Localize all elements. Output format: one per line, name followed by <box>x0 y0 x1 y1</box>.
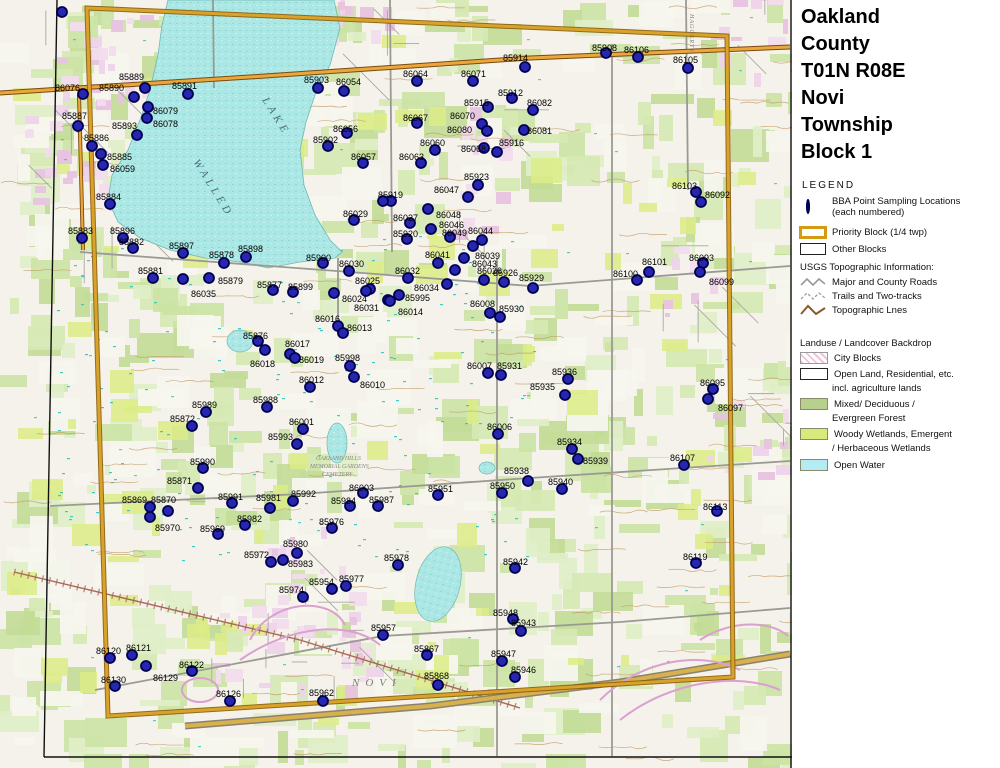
bba-point-label: 85978 <box>384 553 409 563</box>
bba-point-label: 85869 <box>122 495 147 505</box>
bba-point-dot <box>520 62 530 72</box>
bba-point-label: 85942 <box>503 557 528 567</box>
water-swatch <box>800 459 828 471</box>
bba-point-label: 85989 <box>192 400 217 410</box>
bba-point-label: 86041 <box>425 250 450 260</box>
page: WALLEDLAKENOVIHAGGERTYOAKLAND HILLSMEMOR… <box>0 0 1000 768</box>
bba-point-dot <box>141 661 151 671</box>
bba-point-label: 86048 <box>436 210 461 220</box>
topo-line-icon <box>800 304 826 316</box>
bba-point-label: 86103 <box>672 181 697 191</box>
bba-point-label: 85946 <box>511 665 536 675</box>
bba-point-dot <box>442 279 452 289</box>
bba-point-dot <box>129 92 139 102</box>
map-text: CEMETERY <box>322 472 353 478</box>
bba-point-dot <box>204 273 214 283</box>
bba-point-label: 86044 <box>468 226 493 236</box>
bba-point-label: 86100 <box>613 269 638 279</box>
bba-point-dot <box>644 267 654 277</box>
bba-point-label: 86054 <box>336 77 361 87</box>
bba-point-dot <box>339 86 349 96</box>
map-canvas: WALLEDLAKENOVIHAGGERTYOAKLAND HILLSMEMOR… <box>0 0 792 768</box>
title-line: County <box>792 31 1000 58</box>
legend-label-cont: Evergreen Forest <box>800 413 905 424</box>
bba-point-label: 85940 <box>548 477 573 487</box>
bba-point-label: 86081 <box>527 126 552 136</box>
bba-point-label: 86025 <box>355 276 380 286</box>
bba-point-label: 85898 <box>238 244 263 254</box>
bba-point-label: 85948 <box>493 608 518 618</box>
sampling-dot-icon <box>806 199 810 214</box>
bba-point-label: 85914 <box>503 53 528 63</box>
bba-point-dot <box>132 130 142 140</box>
legend-label: BBA Point Sampling Locations(each number… <box>832 196 960 218</box>
bba-point-label: 86030 <box>339 259 364 269</box>
sidebar: Oakland County T01N R08E Novi Township B… <box>792 0 1000 768</box>
bba-point-label: 86107 <box>670 453 695 463</box>
bba-point-label: 85882 <box>119 237 144 247</box>
bba-point-label: 85984 <box>331 496 356 506</box>
legend-item-roads: Major and County Roads <box>800 276 937 288</box>
bba-point-label: 86120 <box>96 646 121 656</box>
bba-point-dot <box>260 345 270 355</box>
title-line: Township <box>792 112 1000 139</box>
bba-point-label: 85935 <box>530 382 555 392</box>
title-line: Oakland <box>792 4 1000 31</box>
bba-point-label: 86093 <box>689 253 714 263</box>
legend-label: City Blocks <box>834 353 881 364</box>
bba-point-label: 86029 <box>343 209 368 219</box>
bba-point-label: 85991 <box>218 492 243 502</box>
bba-point-label: 86095 <box>700 378 725 388</box>
bba-point-label: 86027 <box>393 213 418 223</box>
bba-point-dot <box>463 192 473 202</box>
bba-point-label: 85896 <box>110 226 135 236</box>
bba-point-label: 85923 <box>464 172 489 182</box>
bba-point-label: 85930 <box>499 304 524 314</box>
bba-point-dot <box>485 308 495 318</box>
bba-point-label: 85990 <box>190 457 215 467</box>
title-line: Novi <box>792 85 1000 112</box>
legend-item-water: Open Water <box>800 459 885 471</box>
legend-label: Priority Block (1/4 twp) <box>832 227 927 238</box>
legend-item-trails: Trails and Two-tracks <box>800 290 922 302</box>
legend-item-open: Open Land, Residential, etc. <box>800 368 954 380</box>
legend-label: Major and County Roads <box>832 277 937 288</box>
map-text: OAKLAND HILLS <box>316 456 361 462</box>
bba-point-label: 85976 <box>319 517 344 527</box>
bba-point-label: 85900 <box>306 253 331 263</box>
bba-point-label: 86047 <box>434 185 459 195</box>
bba-point-label: 85893 <box>112 121 137 131</box>
legend-label: Other Blocks <box>832 244 886 255</box>
bba-point-label: 85891 <box>172 81 197 91</box>
bba-point-label: 85983 <box>288 559 313 569</box>
bba-point-label: 85934 <box>557 437 582 447</box>
bba-point-label: 86034 <box>414 283 439 293</box>
bba-point-label: 86018 <box>250 359 275 369</box>
map-title: Oakland County T01N R08E Novi Township B… <box>792 0 1000 166</box>
bba-point-label: 86014 <box>398 307 423 317</box>
bba-point-dot <box>178 274 188 284</box>
bba-point-dot <box>163 506 173 516</box>
legend-label: Topographic Lnes <box>832 305 907 316</box>
bba-point-label: 85919 <box>378 190 403 200</box>
bba-point-dot <box>265 503 275 513</box>
bba-point-dot <box>560 390 570 400</box>
bba-point-dot <box>140 83 150 93</box>
legend-label-cont: incl. agriculture lands <box>800 383 921 394</box>
bba-point-label: 85883 <box>68 226 93 236</box>
bba-point-label: 85902 <box>313 135 338 145</box>
bba-point-dot <box>145 512 155 522</box>
legend-item-forest: Mixed/ Deciduous / <box>800 398 915 410</box>
bba-point-label: 85872 <box>170 414 195 424</box>
bba-point-label: 86106 <box>624 45 649 55</box>
bba-point-label: 85947 <box>491 649 516 659</box>
legend-item-priority: Priority Block (1/4 twp) <box>800 226 927 238</box>
bba-point-label: 86099 <box>709 277 734 287</box>
bba-point-label: 86012 <box>299 375 324 385</box>
bba-point-label: 85969 <box>200 524 225 534</box>
legend-label-cont: / Herbaceous Wetlands <box>800 443 931 454</box>
bba-point-label: 86060 <box>420 138 445 148</box>
bba-point-dot <box>573 454 583 464</box>
bba-point-label: 85926 <box>493 268 518 278</box>
bba-point-label: 86019 <box>299 355 324 365</box>
bba-point-label: 85950 <box>490 481 515 491</box>
bba-point-dot <box>98 160 108 170</box>
bba-point-dot <box>73 121 83 131</box>
bba-point-dot <box>492 147 502 157</box>
bba-point-label: 85982 <box>237 514 262 524</box>
legend-label: Trails and Two-tracks <box>832 291 922 302</box>
bba-point-label: 85993 <box>268 432 293 442</box>
legend-item-wetland: Woody Wetlands, Emergent <box>800 428 952 440</box>
bba-point-dot <box>57 7 67 17</box>
bba-point-dot <box>433 680 443 690</box>
bba-point-label: 85884 <box>96 192 121 202</box>
legend-label: Open Water <box>834 460 885 471</box>
bba-point-label: 85889 <box>119 72 144 82</box>
bba-point-label: 85915 <box>464 98 489 108</box>
bba-point-label: 86121 <box>126 643 151 653</box>
bba-point-label: 85988 <box>253 395 278 405</box>
bba-point-label: 85876 <box>243 331 268 341</box>
bba-point-dot <box>479 275 489 285</box>
legend-item-bba: BBA Point Sampling Locations(each number… <box>800 196 960 218</box>
bba-point-label: 86129 <box>153 673 178 683</box>
bba-point-label: 85957 <box>371 623 396 633</box>
title-line: Block 1 <box>792 139 1000 166</box>
legend-item-other: Other Blocks <box>800 243 886 255</box>
bba-point-label: 85868 <box>424 671 449 681</box>
legend-heading: LEGEND <box>802 180 855 191</box>
bba-point-label: 85977 <box>339 574 364 584</box>
title-line: T01N R08E <box>792 58 1000 85</box>
bba-point-label: 86079 <box>153 106 178 116</box>
bba-point-label: 86056 <box>333 124 358 134</box>
bba-point-label: 85903 <box>304 75 329 85</box>
bba-point-label: 86122 <box>179 660 204 670</box>
bba-point-label: 85897 <box>169 241 194 251</box>
bba-point-dot <box>528 283 538 293</box>
bba-point-label: 86071 <box>461 69 486 79</box>
bba-point-dot <box>193 483 203 493</box>
legend-label: Woody Wetlands, Emergent <box>834 429 952 440</box>
bba-point-label: 85931 <box>497 361 522 371</box>
bba-point-dot <box>329 288 339 298</box>
bba-point-label: 86032 <box>395 266 420 276</box>
bba-point-label: 86105 <box>673 55 698 65</box>
bba-point-dot <box>523 476 533 486</box>
bba-point-label: 86064 <box>403 69 428 79</box>
bba-point-label: 85972 <box>244 550 269 560</box>
bba-point-label: 86008 <box>470 299 495 309</box>
legend-item-city: City Blocks <box>800 352 881 364</box>
bba-point-label: 85870 <box>151 495 176 505</box>
map-text: MEMORIAL GARDENS <box>309 464 369 470</box>
map-text: NOVI <box>351 677 402 689</box>
bba-point-label: 85890 <box>99 83 124 93</box>
bba-point-dot <box>292 439 302 449</box>
bba-point-label: 85887 <box>62 111 87 121</box>
bba-point-label: 85886 <box>84 133 109 143</box>
bba-point-label: 85878 <box>209 250 234 260</box>
bba-point-dot <box>459 253 469 263</box>
bba-point-label: 85998 <box>335 353 360 363</box>
bba-point-label: 85929 <box>519 273 544 283</box>
bba-point-dot <box>423 204 433 214</box>
open-land-swatch <box>800 368 828 380</box>
bba-point-label: 86080 <box>447 125 472 135</box>
priority-block-swatch <box>800 226 826 238</box>
bba-point-dot <box>477 235 487 245</box>
bba-point-label: 85938 <box>504 466 529 476</box>
bba-point-label: 85939 <box>583 456 608 466</box>
bba-point-label: 86017 <box>285 339 310 349</box>
bba-point-label: 86006 <box>487 422 512 432</box>
bba-point-label: 86113 <box>703 502 727 512</box>
bba-point-label: 86119 <box>683 552 707 562</box>
bba-point-label: 86078 <box>153 119 178 129</box>
bba-point-dot <box>142 113 152 123</box>
bba-point-dot <box>96 149 106 159</box>
bba-point-label: 86049 <box>442 228 467 238</box>
bba-point-dot <box>450 265 460 275</box>
bba-point-label: 85916 <box>499 138 524 148</box>
bba-point-label: 86010 <box>360 380 385 390</box>
wetland-swatch <box>800 428 828 440</box>
other-block-swatch <box>800 243 826 255</box>
bba-point-label: 86067 <box>403 113 428 123</box>
bba-point-dot <box>292 548 302 558</box>
bba-point-label: 85885 <box>107 152 132 162</box>
map-text: HAGGERTY <box>688 13 694 53</box>
landuse-heading: Landuse / Landcover Backdrop <box>800 338 932 349</box>
bba-point-label: 86130 <box>101 675 126 685</box>
bba-point-label: 86082 <box>527 98 552 108</box>
bba-point-label: 85995 <box>405 293 430 303</box>
bba-point-label: 86092 <box>705 190 730 200</box>
bba-point-label: 85981 <box>256 493 281 503</box>
trail-line-icon <box>800 290 826 302</box>
usgs-heading: USGS Topographic Information: <box>800 262 934 273</box>
bba-point-label: 85951 <box>428 484 453 494</box>
bba-point-label: 85970 <box>155 523 180 533</box>
bba-point-label: 86070 <box>450 111 475 121</box>
bba-point-dot <box>426 224 436 234</box>
bba-point-dot <box>703 394 713 404</box>
city-blocks-swatch <box>800 352 828 364</box>
bba-point-dot <box>349 372 359 382</box>
bba-point-dot <box>482 126 492 136</box>
bba-point-label: 85912 <box>498 88 523 98</box>
bba-point-label: 85920 <box>393 229 418 239</box>
bba-point-label: 85980 <box>283 539 308 549</box>
bba-point-dot <box>496 370 506 380</box>
bba-point-label: 85974 <box>279 585 304 595</box>
bba-point-label: 86063 <box>399 152 424 162</box>
bba-point-label: 86003 <box>349 483 374 493</box>
bba-point-dot <box>499 277 509 287</box>
bba-point-label: 86035 <box>191 289 216 299</box>
bba-point-dot <box>695 267 705 277</box>
bba-point-dot <box>278 555 288 565</box>
bba-point-label: 86057 <box>351 152 376 162</box>
bba-point-dot <box>468 241 478 251</box>
bba-point-label: 86013 <box>347 323 372 333</box>
bba-point-label: 85908 <box>592 43 617 53</box>
road-line-icon <box>800 276 826 288</box>
bba-point-label: 85871 <box>167 476 192 486</box>
bba-point-dot <box>394 290 404 300</box>
bba-point-label: 86076 <box>55 83 80 93</box>
bba-point-label: 85954 <box>309 577 334 587</box>
legend-item-topo: Topographic Lnes <box>800 304 907 316</box>
bba-point-label: 85879 <box>218 276 243 286</box>
bba-point-label: 86126 <box>216 689 241 699</box>
topographic-map: WALLEDLAKENOVIHAGGERTYOAKLAND HILLSMEMOR… <box>0 0 792 768</box>
bba-point-dot <box>143 102 153 112</box>
bba-point-label: 85987 <box>369 495 394 505</box>
bba-point-label: 85899 <box>288 282 313 292</box>
bba-point-dot <box>385 296 395 306</box>
bba-point-label: 86031 <box>354 303 379 313</box>
forest-swatch <box>800 398 828 410</box>
bba-point-swatch <box>800 201 826 213</box>
bba-point-label: 86001 <box>289 417 314 427</box>
bba-point-label: 85877 <box>257 280 282 290</box>
bba-point-label: 85881 <box>138 266 163 276</box>
bba-point-label: 85992 <box>291 489 316 499</box>
legend-label: Mixed/ Deciduous / <box>834 399 915 410</box>
bba-point-label: 85867 <box>414 644 439 654</box>
bba-point-label: 86101 <box>642 257 667 267</box>
legend-label: Open Land, Residential, etc. <box>834 369 954 380</box>
bba-point-label: 86097 <box>718 403 743 413</box>
bba-point-label: 86059 <box>110 164 135 174</box>
bba-point-label: 86007 <box>467 361 492 371</box>
bba-point-label: 85936 <box>552 367 577 377</box>
bba-point-label: 85962 <box>309 688 334 698</box>
bba-point-label: 86068 <box>461 144 486 154</box>
bba-point-label: 86016 <box>315 314 340 324</box>
bba-point-label: 85943 <box>511 618 536 628</box>
